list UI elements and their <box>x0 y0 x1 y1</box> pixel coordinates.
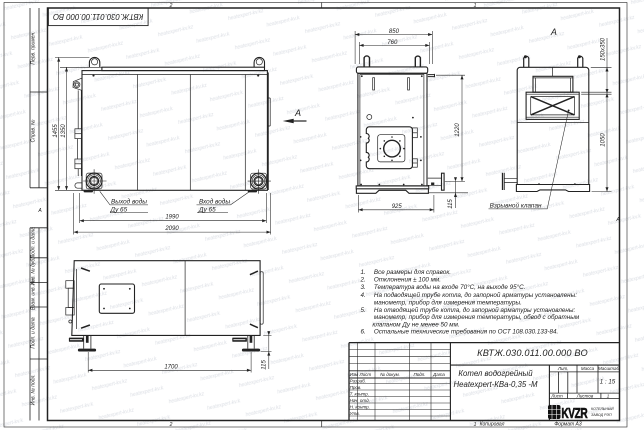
svg-text:2090: 2090 <box>164 226 179 232</box>
svg-text:Взрывной клапан: Взрывной клапан <box>490 201 542 209</box>
svg-text:1050: 1050 <box>601 133 607 147</box>
svg-text:А: А <box>550 27 557 37</box>
svg-text:115: 115 <box>448 199 454 209</box>
svg-text:Листов: Листов <box>576 393 594 398</box>
svg-text:3.: 3. <box>361 284 366 291</box>
svg-text:1990: 1990 <box>165 214 179 220</box>
svg-text:КОТЕЛЬНЫЙ: КОТЕЛЬНЫЙ <box>591 407 614 411</box>
svg-text:№ докум.: № докум. <box>380 372 400 377</box>
svg-text:манометр, прибор для измерения: манометр, прибор для измерения температу… <box>374 298 522 306</box>
svg-text:2.: 2. <box>360 277 366 284</box>
svg-text:1 : 15: 1 : 15 <box>600 379 616 386</box>
svg-text:На отводящей трубе котла, до з: На отводящей трубе котла, до запорной ар… <box>374 306 576 314</box>
svg-text:Лист: Лист <box>359 372 372 377</box>
svg-text:760: 760 <box>387 40 398 46</box>
svg-text:Т. контр.: Т. контр. <box>350 391 369 396</box>
svg-text:Подп.: Подп. <box>414 372 426 377</box>
svg-text:2: 2 <box>169 3 173 9</box>
svg-text:Отклонения ± 100 мм.: Отклонения ± 100 мм. <box>374 277 441 284</box>
svg-text:Перв. примен.: Перв. примен. <box>31 31 37 64</box>
svg-text:1220: 1220 <box>455 123 461 137</box>
svg-text:Лист: Лист <box>550 393 563 398</box>
svg-text:1350: 1350 <box>61 124 67 138</box>
svg-text:Н. контр.: Н. контр. <box>350 404 370 409</box>
svg-text:Масса: Масса <box>581 366 595 371</box>
svg-text:Утв.: Утв. <box>350 411 360 416</box>
svg-text:Подп. и дата: Подп. и дата <box>31 227 37 259</box>
svg-text:Все размеры для справок.: Все размеры для справок. <box>374 268 451 276</box>
svg-text:Инв. № подл.: Инв. № подл. <box>31 374 37 405</box>
svg-text:Лит.: Лит. <box>557 366 569 371</box>
svg-text:манометр, прибор для измерения: манометр, прибор для измерения температу… <box>374 313 580 321</box>
svg-text:Пров.: Пров. <box>350 385 362 390</box>
svg-text:115: 115 <box>261 360 267 370</box>
svg-text:1455: 1455 <box>53 124 59 138</box>
svg-text:Масштаб: Масштаб <box>598 366 619 371</box>
svg-text:5.: 5. <box>361 307 366 314</box>
svg-text:А: А <box>294 108 301 118</box>
svg-text:6.: 6. <box>361 329 366 336</box>
svg-text:Подп. и дата: Подп. и дата <box>31 317 37 349</box>
svg-text:KVZR: KVZR <box>561 405 587 421</box>
svg-text:КВТЖ.030.011.00.000 ВО: КВТЖ.030.011.00.000 ВО <box>477 348 588 358</box>
svg-text:850: 850 <box>389 29 400 35</box>
svg-text:Ду 65: Ду 65 <box>110 206 128 213</box>
svg-text:Разраб.: Разраб. <box>350 378 366 383</box>
svg-text:ЗАВОД РЭП: ЗАВОД РЭП <box>591 413 612 417</box>
svg-text:1: 1 <box>474 422 477 428</box>
svg-text:Вход воды: Вход воды <box>199 197 230 205</box>
svg-text:клапаном Ду не менее 50 мм.: клапаном Ду не менее 50 мм. <box>372 321 459 328</box>
svg-text:Ду 65: Ду 65 <box>198 206 216 213</box>
svg-text:Дата: Дата <box>432 372 445 377</box>
svg-text:Котел водогрейный: Котел водогрейный <box>458 369 533 378</box>
svg-text:2: 2 <box>169 422 173 428</box>
svg-text:КВТЖ.030.011.00.000 ВО: КВТЖ.030.011.00.000 ВО <box>53 12 143 21</box>
svg-text:925: 925 <box>392 204 403 210</box>
svg-text:Формат А3: Формат А3 <box>554 422 582 428</box>
svg-text:А: А <box>615 217 620 223</box>
svg-text:На подводящей трубе котла, до: На подводящей трубе котла, до запорной а… <box>374 291 577 299</box>
svg-text:1.: 1. <box>361 269 366 276</box>
svg-text:А: А <box>37 208 42 214</box>
svg-text:Остальные технические требован: Остальные технические требования по ОСТ … <box>374 328 558 336</box>
svg-text:150х350: 150х350 <box>601 37 607 61</box>
svg-text:4.: 4. <box>361 292 366 299</box>
svg-text:1: 1 <box>474 3 477 9</box>
svg-text:Изм: Изм <box>350 372 358 377</box>
svg-text:Нач. отд.: Нач. отд. <box>350 398 370 403</box>
svg-text:Heatexpert-КВа-0,35 -М: Heatexpert-КВа-0,35 -М <box>454 380 538 389</box>
svg-text:Температура воды на входе 70°С: Температура воды на входе 70°С, на выход… <box>374 283 526 291</box>
svg-text:Взам. инв. №: Взам. инв. № <box>31 279 37 311</box>
svg-text:1700: 1700 <box>164 365 178 371</box>
svg-text:Копировал: Копировал <box>480 422 505 428</box>
svg-text:Справ. №: Справ. № <box>31 119 37 142</box>
svg-text:Выход воды: Выход воды <box>111 197 147 205</box>
